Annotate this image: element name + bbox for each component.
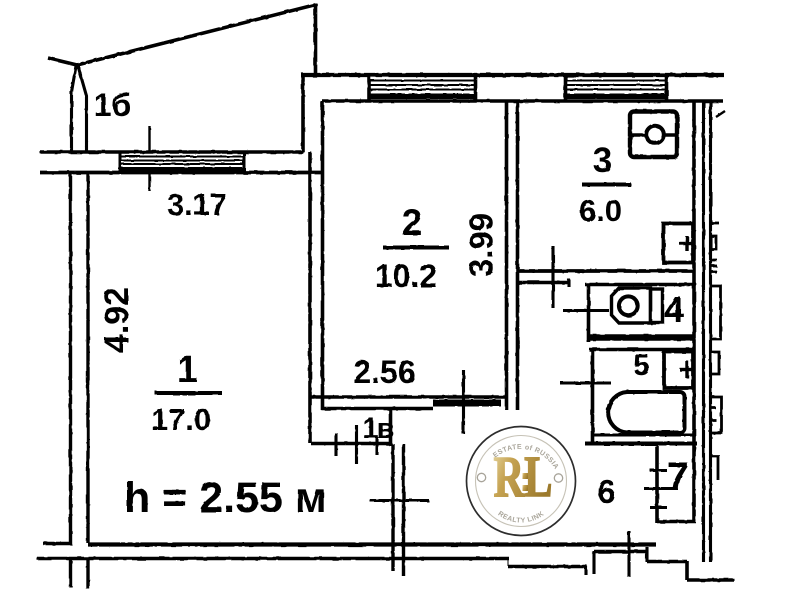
- svg-text:5: 5: [633, 349, 650, 382]
- svg-text:10.2: 10.2: [375, 258, 437, 294]
- svg-text:6.0: 6.0: [579, 193, 622, 228]
- svg-text:3.99: 3.99: [463, 213, 500, 277]
- svg-text:h = 2.55 м: h = 2.55 м: [124, 474, 327, 522]
- svg-text:2: 2: [402, 202, 423, 243]
- svg-text:17.0: 17.0: [151, 402, 211, 437]
- svg-text:2.56: 2.56: [353, 354, 415, 390]
- svg-text:1: 1: [177, 349, 198, 391]
- svg-text:4: 4: [664, 289, 684, 330]
- svg-text:3: 3: [593, 141, 612, 180]
- svg-text:1в: 1в: [363, 413, 394, 445]
- svg-text:1б: 1б: [94, 87, 132, 123]
- svg-text:4.92: 4.92: [98, 287, 136, 353]
- svg-text:7: 7: [667, 455, 689, 499]
- svg-text:3.17: 3.17: [167, 187, 227, 222]
- svg-text:6: 6: [597, 473, 615, 510]
